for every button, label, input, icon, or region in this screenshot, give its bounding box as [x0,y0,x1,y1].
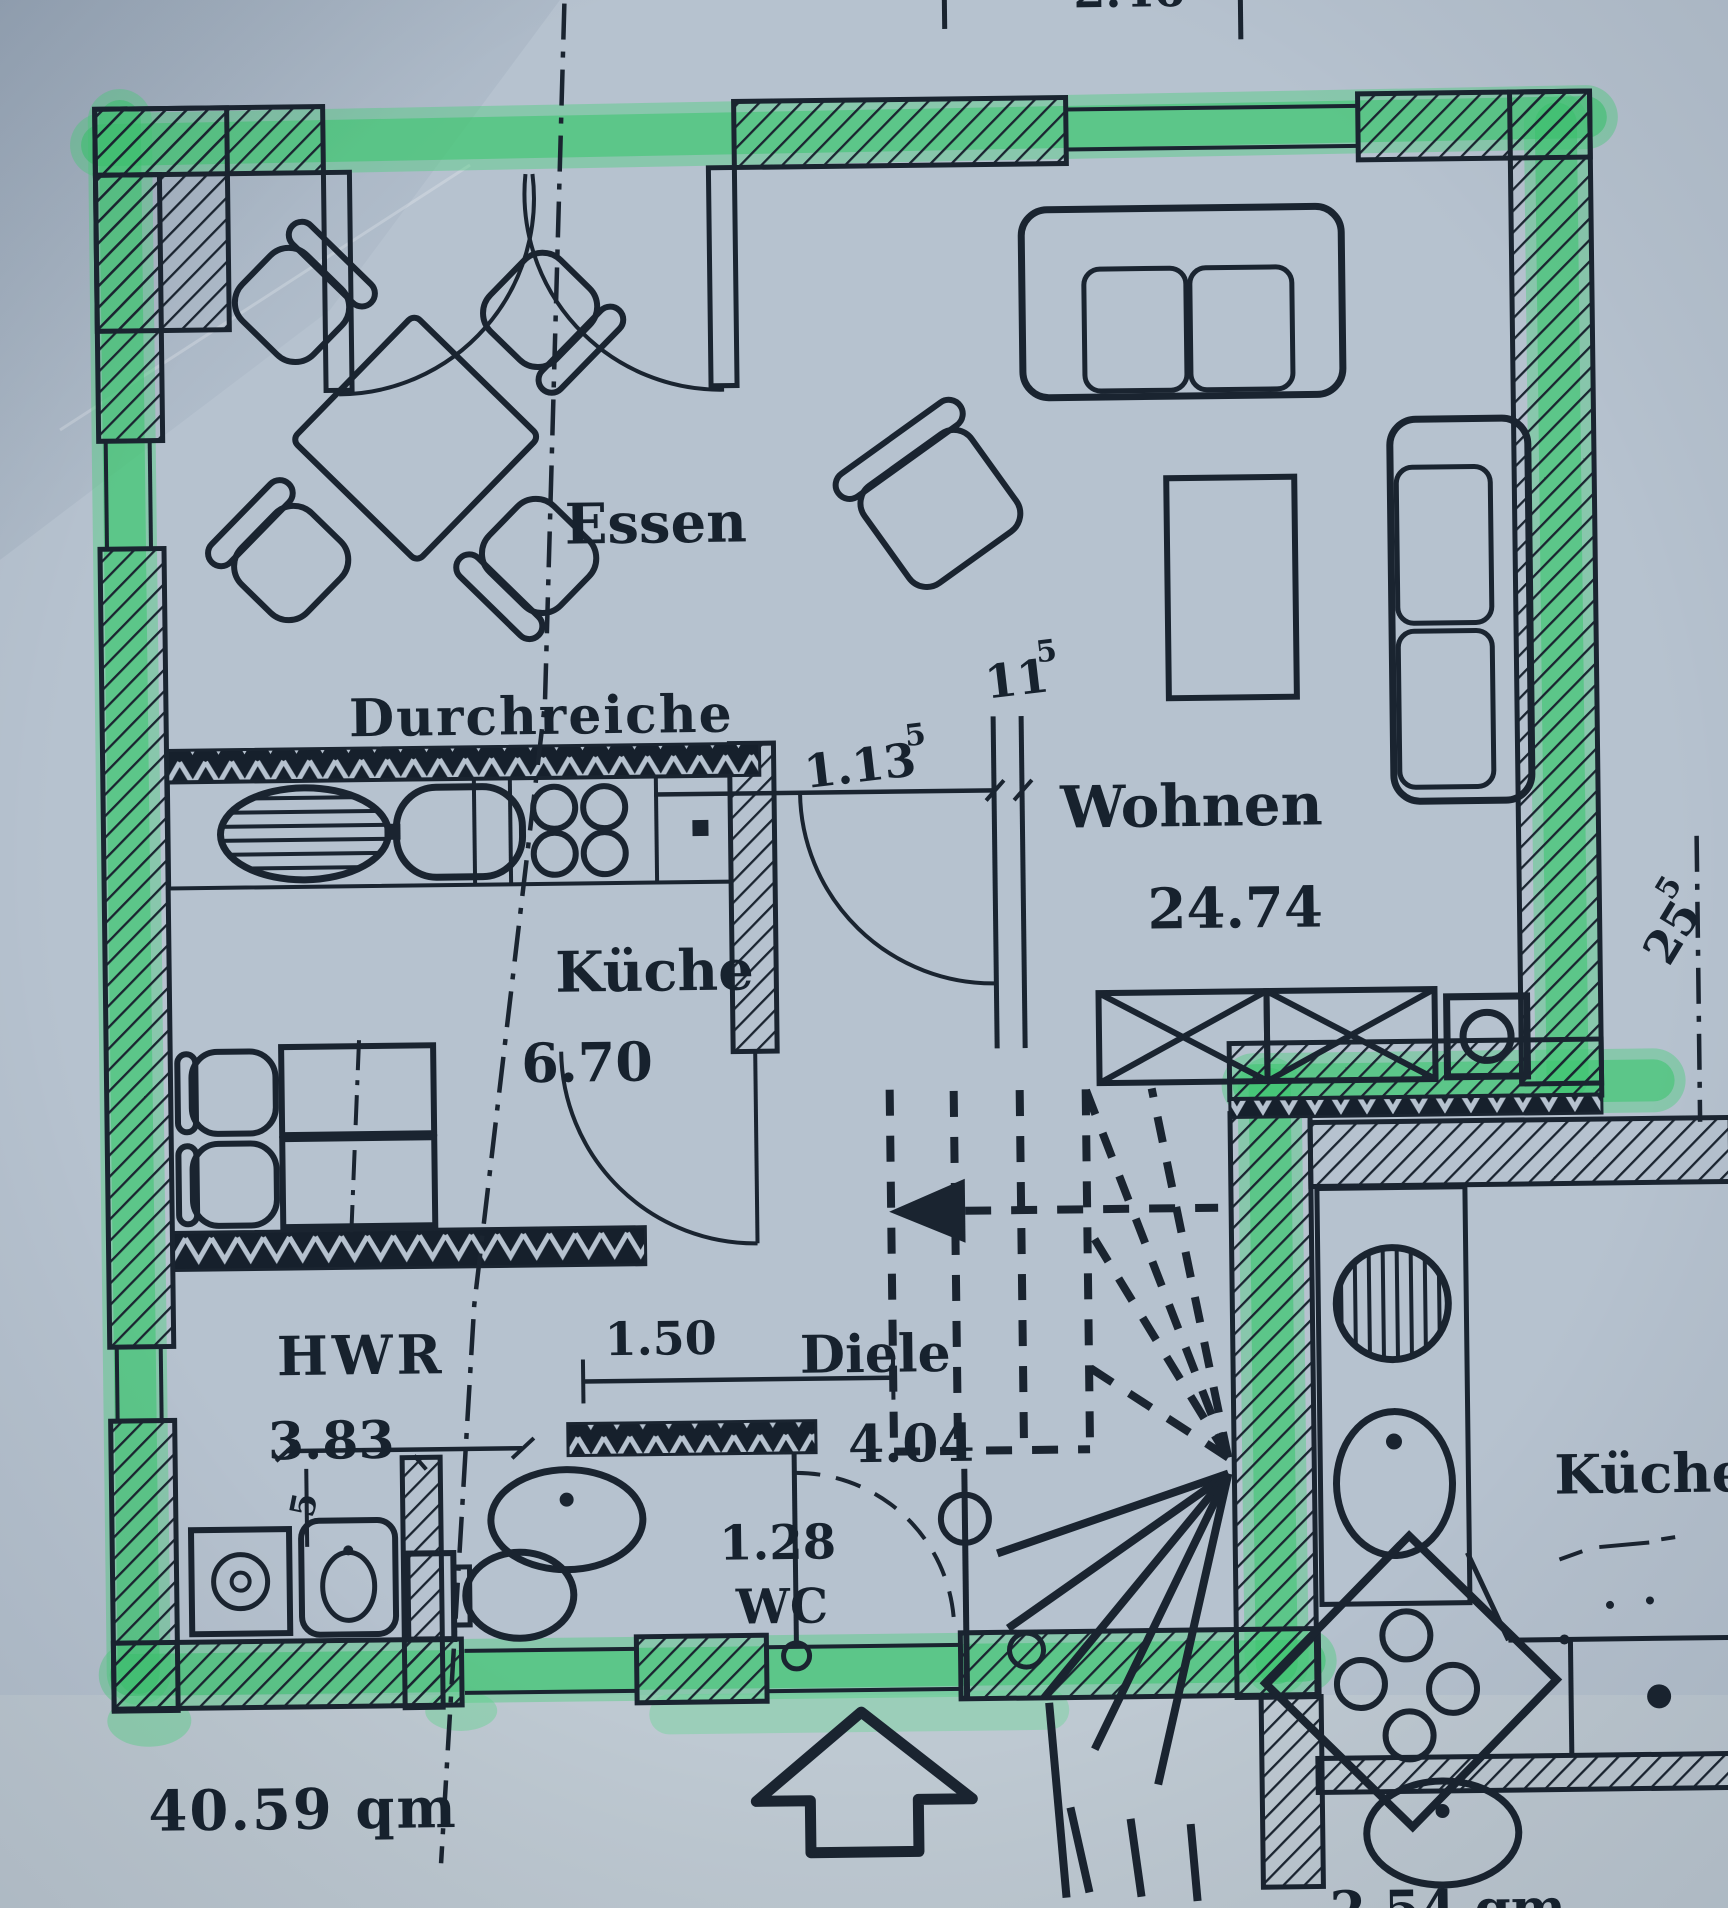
floor-plan-canvas: Essen Wohnen 24.74 Küche 6.70 HWR 3.83 D… [0,0,1728,1908]
floor-plan-photo: Essen Wohnen 24.74 Küche 6.70 HWR 3.83 D… [0,0,1728,1908]
photo-vignette [0,0,1728,1908]
